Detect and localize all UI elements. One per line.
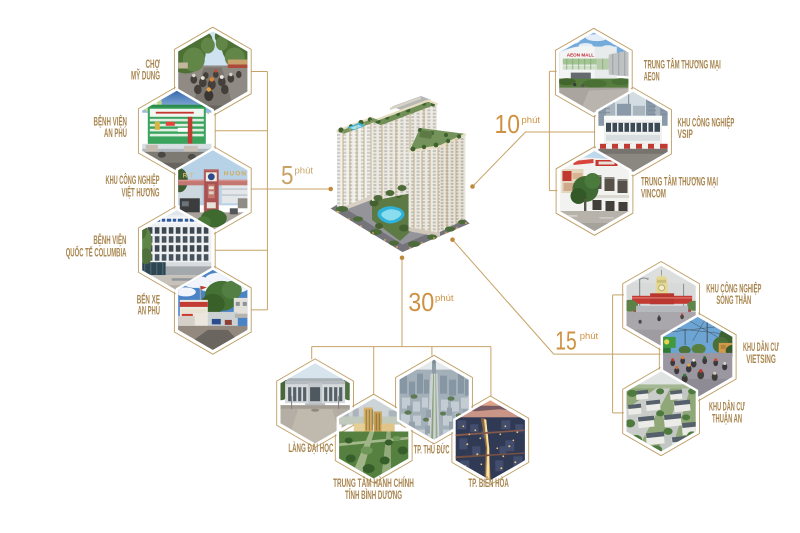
svg-text:MỸ DUNG: MỸ DUNG: [131, 70, 160, 83]
svg-text:15: 15: [555, 325, 577, 355]
svg-text:AN PHÚ: AN PHÚ: [138, 304, 160, 317]
svg-text:KHU DÂN CƯ: KHU DÂN CƯ: [743, 341, 779, 354]
svg-text:CHỢ: CHỢ: [146, 59, 161, 71]
svg-text:SÓNG THẦN: SÓNG THẦN: [716, 294, 751, 307]
svg-text:LÀNG ĐẠI HỌC: LÀNG ĐẠI HỌC: [288, 442, 333, 455]
svg-text:AEON MALL: AEON MALL: [567, 53, 594, 58]
svg-text:KHU DÂN CƯ: KHU DÂN CƯ: [709, 401, 745, 414]
svg-text:KHU CÔNG NGHIỆP: KHU CÔNG NGHIỆP: [678, 117, 735, 130]
svg-text:phút: phút: [435, 293, 454, 304]
svg-text:AN PHÚ: AN PHÚ: [104, 127, 127, 140]
svg-text:TRUNG TÂM THƯƠNG MẠI: TRUNG TÂM THƯƠNG MẠI: [641, 176, 718, 189]
svg-text:KHU CÔNG NGHIỆP: KHU CÔNG NGHIỆP: [106, 174, 160, 187]
svg-text:30: 30: [408, 287, 434, 317]
svg-text:TP. THỦ ĐỨC: TP. THỦ ĐỨC: [414, 444, 450, 457]
svg-text:TP. BIÊN HÒA: TP. BIÊN HÒA: [468, 477, 508, 490]
svg-text:10: 10: [495, 109, 521, 139]
svg-text:VINCOM: VINCOM: [641, 188, 666, 200]
svg-text:QUỐC TẾ COLUMBIA: QUỐC TẾ COLUMBIA: [66, 245, 127, 259]
svg-text:phút: phút: [522, 115, 541, 126]
svg-text:HUON: HUON: [224, 170, 247, 177]
svg-text:TRUNG TÂM THƯƠNG MẠI: TRUNG TÂM THƯƠNG MẠI: [644, 59, 721, 72]
svg-text:KHU CÔNG NGHIỆP: KHU CÔNG NGHIỆP: [706, 282, 761, 295]
svg-text:THUẬN AN: THUẬN AN: [712, 413, 742, 426]
svg-text:AEON: AEON: [644, 71, 660, 83]
svg-text:VIETSING: VIETSING: [746, 354, 776, 366]
svg-text:BỆNH VIỆN: BỆNH VIỆN: [94, 115, 128, 128]
svg-text:TRUNG TÂM HÀNH CHÍNH: TRUNG TÂM HÀNH CHÍNH: [333, 477, 414, 490]
svg-text:phút: phút: [580, 331, 599, 342]
svg-text:RT: RT: [183, 172, 196, 179]
svg-text:VSIP: VSIP: [678, 129, 693, 141]
svg-text:TỈNH BÌNH DƯƠNG: TỈNH BÌNH DƯƠNG: [345, 489, 402, 502]
svg-text:VIỆT HƯƠNG: VIỆT HƯƠNG: [122, 186, 160, 199]
svg-text:BỆNH VIỆN: BỆNH VIỆN: [93, 234, 126, 247]
svg-text:5: 5: [281, 160, 294, 190]
svg-text:phút: phút: [295, 166, 314, 177]
